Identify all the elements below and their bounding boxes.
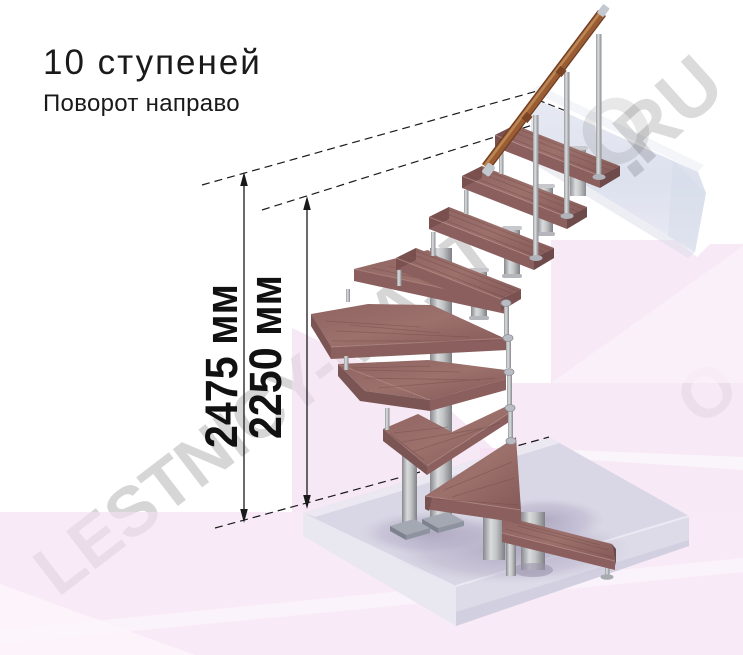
svg-text:2250 мм: 2250 мм	[240, 275, 291, 439]
svg-text:Поворот направо: Поворот направо	[43, 90, 240, 117]
svg-text:10 ступеней: 10 ступеней	[43, 43, 262, 82]
